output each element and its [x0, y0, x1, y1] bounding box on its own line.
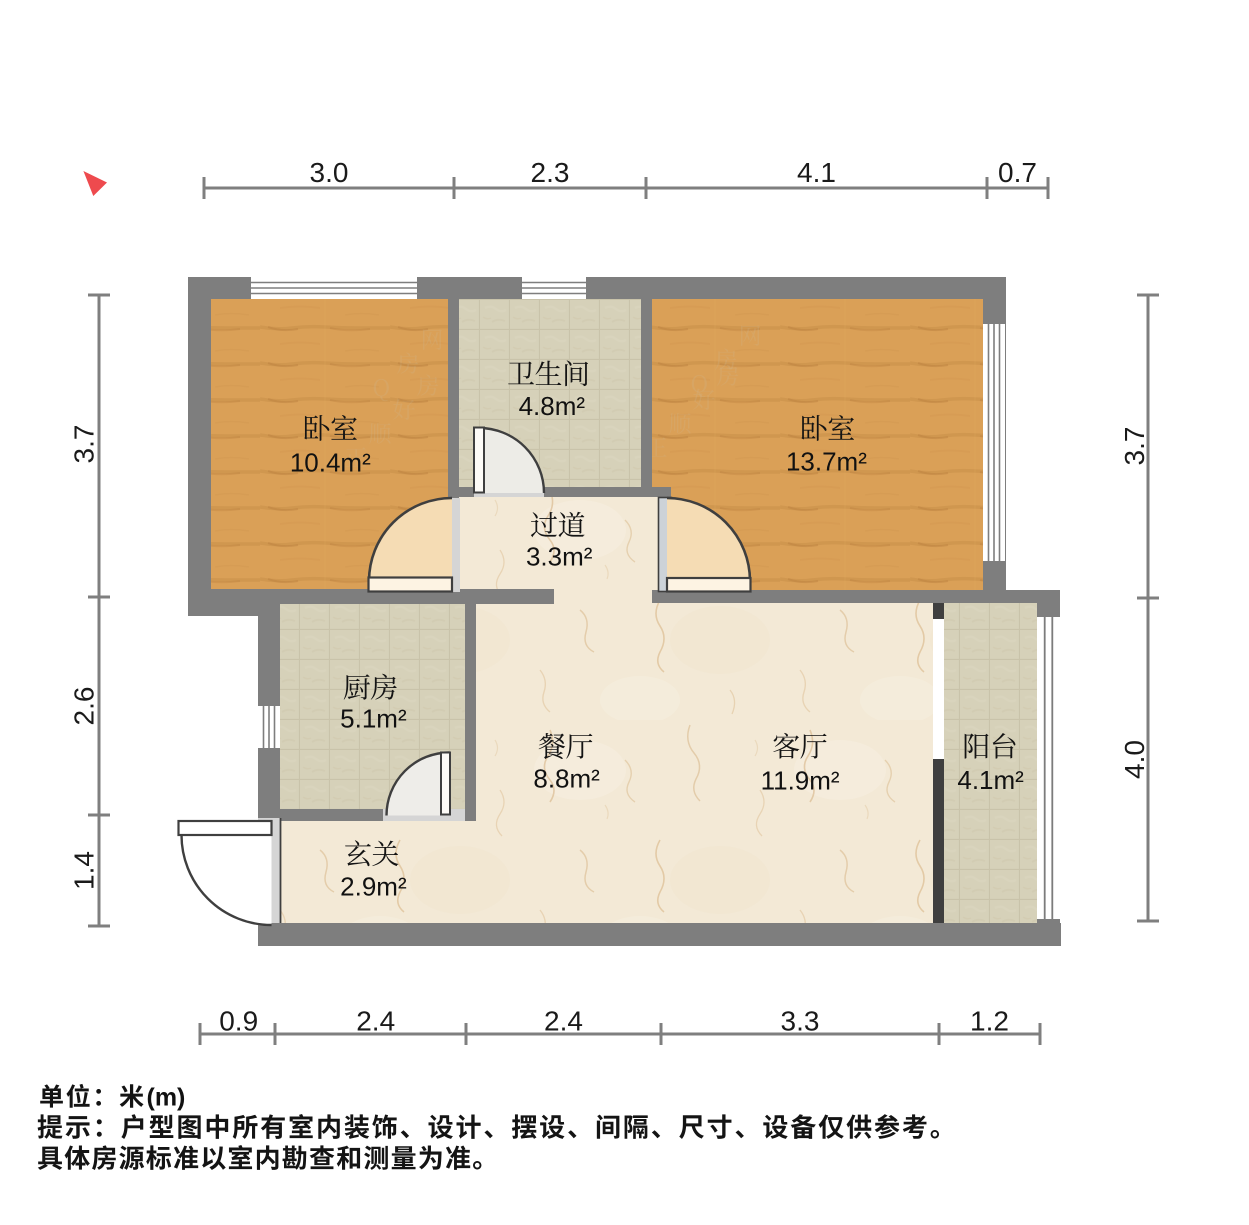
svg-text:5.1m²: 5.1m²: [340, 704, 407, 734]
svg-text:3.0: 3.0: [310, 157, 349, 188]
svg-text:0.7: 0.7: [998, 157, 1037, 188]
svg-text:0.9: 0.9: [219, 1006, 258, 1037]
svg-text:1.4: 1.4: [68, 851, 99, 890]
svg-text:4.0: 4.0: [1119, 740, 1150, 779]
svg-text:11.9m²: 11.9m²: [761, 766, 840, 796]
svg-text:2.4: 2.4: [544, 1006, 583, 1037]
svg-text:10.4m²: 10.4m²: [290, 448, 371, 478]
svg-text:3.3m²: 3.3m²: [526, 542, 593, 572]
svg-text:2.4: 2.4: [356, 1006, 395, 1037]
svg-text:2.9m²: 2.9m²: [340, 871, 407, 901]
svg-text:4.8m²: 4.8m²: [519, 391, 586, 421]
svg-text:4.1m²: 4.1m²: [957, 765, 1024, 795]
svg-text:13.7m²: 13.7m²: [786, 447, 867, 477]
svg-text:1.2: 1.2: [970, 1006, 1009, 1037]
svg-text:8.8m²: 8.8m²: [533, 764, 600, 794]
svg-text:2.6: 2.6: [68, 687, 99, 726]
svg-text:(m): (m): [147, 1084, 186, 1112]
svg-text:3.7: 3.7: [1119, 427, 1150, 466]
svg-text:3.7: 3.7: [68, 425, 99, 464]
svg-text:2.3: 2.3: [531, 157, 570, 188]
svg-text:4.1: 4.1: [797, 157, 836, 188]
svg-text:3.3: 3.3: [781, 1006, 820, 1037]
